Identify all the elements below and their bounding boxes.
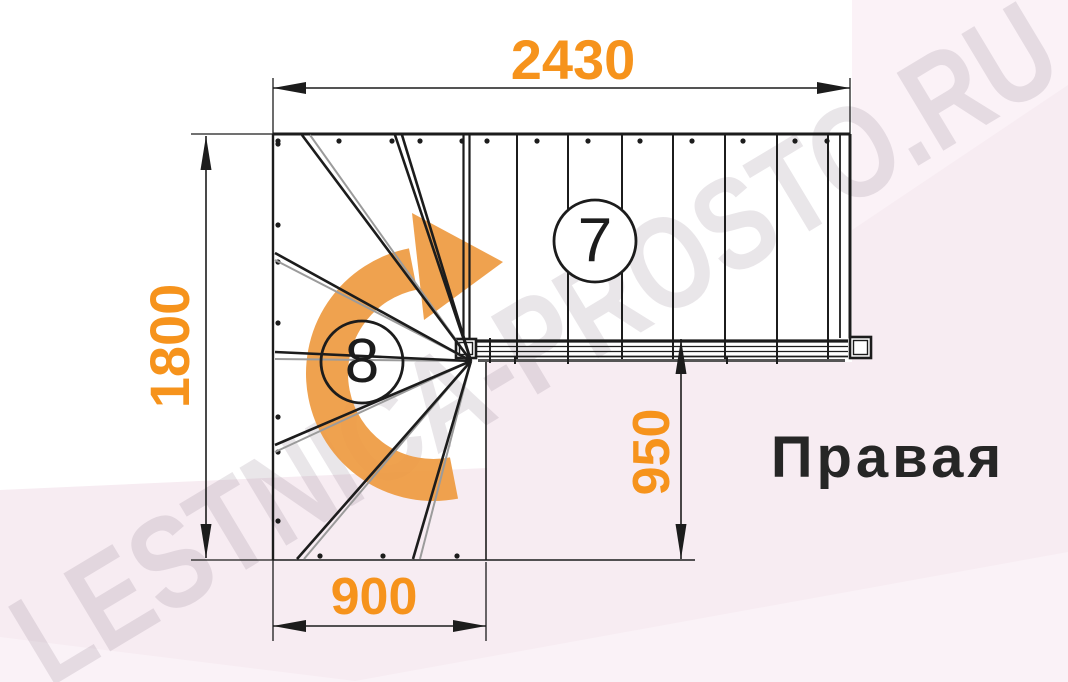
screw-dot <box>275 320 280 325</box>
dimension-arrowhead <box>201 524 212 558</box>
screw-dot <box>336 138 341 143</box>
dimension-label-top-width: 2430 <box>443 32 703 88</box>
screw-dot <box>275 414 280 419</box>
screw-dot <box>389 138 394 143</box>
screw-dot <box>454 553 459 558</box>
dimension-label-bottom-width: 900 <box>244 571 504 623</box>
dimension-label-exit-width: 950 <box>626 322 678 582</box>
screw-dot <box>275 222 280 227</box>
screw-dot <box>380 553 385 558</box>
screw-dot <box>792 138 797 143</box>
stair-plan-page: LESTNICA-PROSTO.RU 2430 1800 950 900 7 8… <box>0 0 1068 682</box>
screw-dot <box>824 138 829 143</box>
screw-dot <box>740 138 745 143</box>
screw-dot <box>317 553 322 558</box>
screw-dot <box>417 138 422 143</box>
orientation-label: Правая <box>738 426 1038 490</box>
screw-dot <box>585 138 590 143</box>
dimension-arrowhead <box>817 82 850 94</box>
step-count-winder: 8 <box>322 333 402 391</box>
screw-dot <box>689 138 694 143</box>
screw-dot <box>484 138 489 143</box>
step-count-upper-flight: 7 <box>555 212 635 270</box>
dimension-arrowhead <box>273 82 306 94</box>
dimension-label-left-height: 1800 <box>142 216 198 476</box>
screw-dot <box>534 138 539 143</box>
screw-dot <box>275 141 280 146</box>
dimension-arrowhead <box>201 136 212 170</box>
screw-dot <box>275 518 280 523</box>
screw-dot <box>637 138 642 143</box>
